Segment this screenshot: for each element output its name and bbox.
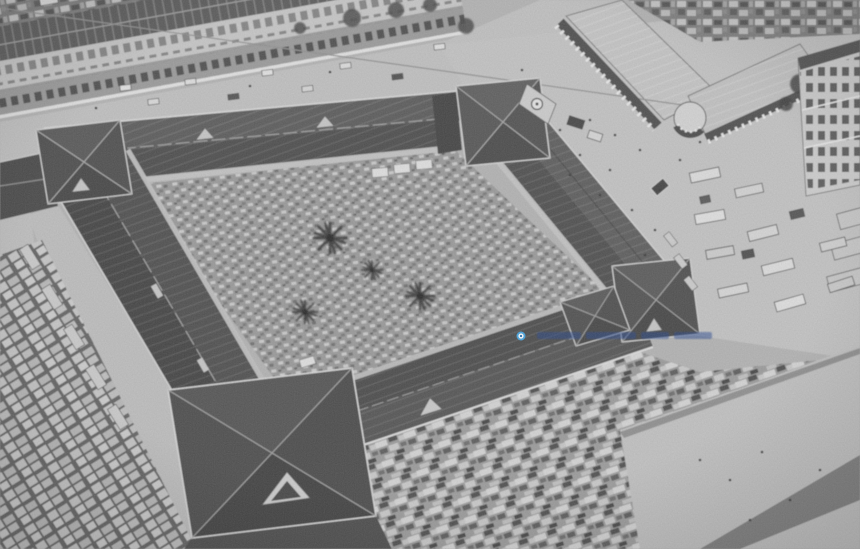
aerial-photo: Black-and-white aerial photograph of a l… <box>0 0 860 549</box>
vignette <box>0 0 860 549</box>
photo-canvas <box>0 0 860 549</box>
